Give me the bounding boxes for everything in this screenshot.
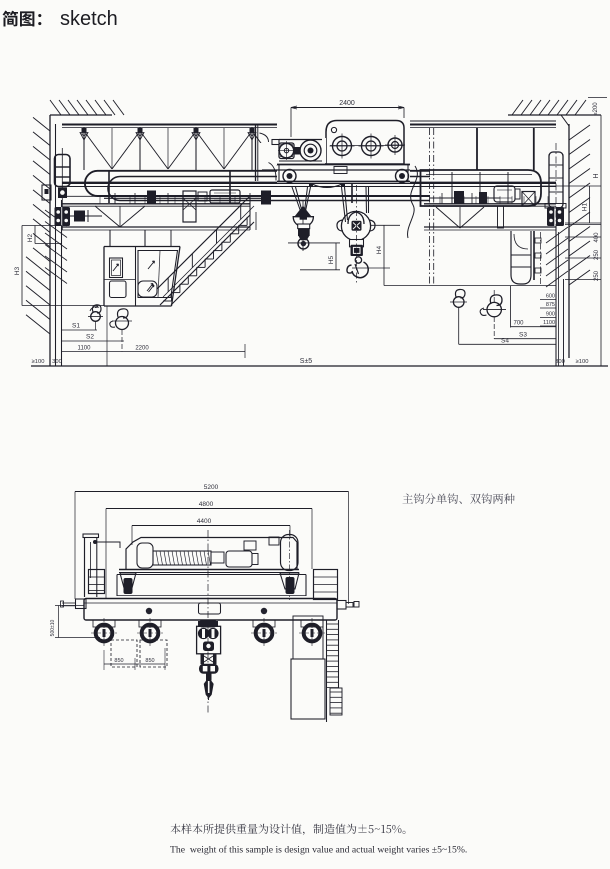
svg-text:850: 850 [145, 658, 154, 664]
svg-text:≥100: ≥100 [32, 359, 45, 365]
svg-text:2400: 2400 [339, 100, 355, 107]
svg-text:≥200: ≥200 [593, 102, 599, 116]
svg-text:1100: 1100 [78, 346, 92, 352]
svg-text:900: 900 [546, 312, 555, 318]
svg-text:S±5: S±5 [300, 358, 313, 365]
svg-text:250: 250 [594, 249, 600, 260]
svg-text:875: 875 [546, 302, 555, 308]
svg-text:S4: S4 [501, 338, 509, 345]
svg-text:4800: 4800 [199, 501, 214, 508]
svg-text:600: 600 [546, 294, 555, 300]
svg-text:H: H [593, 173, 600, 178]
svg-text:300: 300 [555, 359, 565, 365]
svg-text:400: 400 [594, 232, 600, 243]
svg-text:sketch: sketch [60, 8, 118, 30]
svg-text:1100: 1100 [543, 320, 555, 326]
svg-text:H3: H3 [14, 266, 21, 275]
svg-text:S2: S2 [86, 334, 94, 341]
svg-text:300: 300 [52, 359, 62, 365]
svg-text:250: 250 [594, 270, 600, 281]
svg-text:H2: H2 [27, 233, 34, 242]
svg-text:850: 850 [114, 658, 123, 664]
svg-text:S3: S3 [519, 332, 527, 339]
svg-text:H5: H5 [328, 255, 335, 264]
svg-text:2200: 2200 [135, 346, 149, 352]
svg-text:700: 700 [513, 321, 524, 327]
svg-text:H4: H4 [376, 245, 383, 254]
svg-text:S1: S1 [72, 323, 80, 330]
svg-text:500±10: 500±10 [50, 619, 56, 636]
svg-text:≥100: ≥100 [576, 359, 589, 365]
svg-text:5200: 5200 [204, 484, 219, 491]
svg-text:4400: 4400 [197, 518, 212, 525]
svg-text:The weight of this sample is: The weight of this sample is design valu… [170, 845, 467, 856]
svg-text:H1: H1 [582, 202, 589, 211]
